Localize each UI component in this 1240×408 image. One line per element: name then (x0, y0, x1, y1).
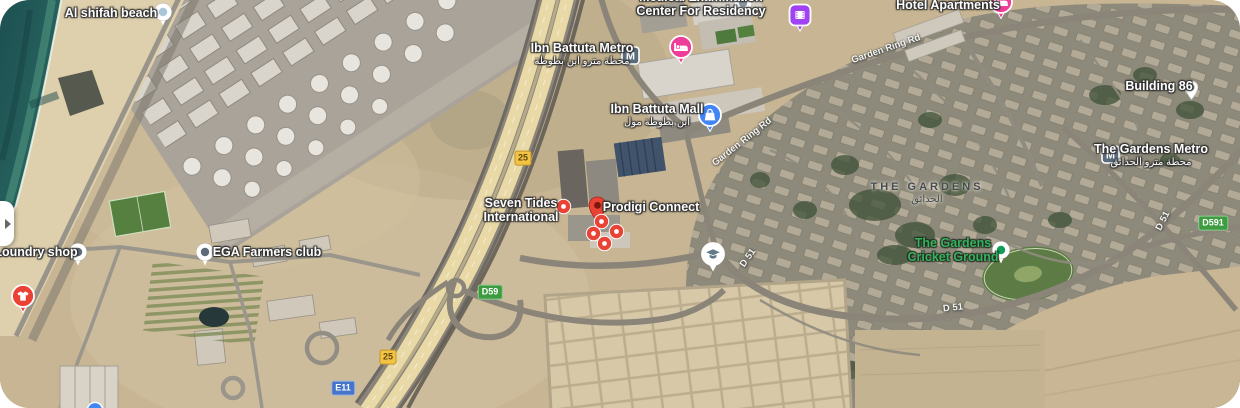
map-overlay: Al shifah beachMedical ExaminationCenter… (0, 0, 1240, 408)
marker-attraction-marker[interactable] (787, 2, 813, 33)
label-line: THE GARDENS (870, 181, 983, 193)
label-line: Seven Tides (483, 196, 558, 210)
route-badge-e11: E11 (331, 381, 355, 396)
route-badge-d59: D59 (478, 285, 503, 300)
marker-school-marker[interactable] (700, 241, 726, 272)
label-line: Prodigi Connect (603, 200, 700, 214)
poi-partial-icon (86, 401, 104, 408)
label-line: Hotel Apartments (896, 0, 1000, 12)
place-label-loundry-shop[interactable]: Loundry shop (0, 245, 78, 259)
cap-icon (700, 241, 726, 272)
road-label-2: D 51 (738, 247, 759, 270)
label-line: International (483, 210, 558, 224)
road-label-3: D 51 (942, 301, 963, 314)
red-dot-icon (596, 235, 613, 252)
route-badge-d591: D591 (1198, 216, 1228, 231)
route-badge-25: 25 (379, 350, 396, 365)
label-line: Building 86 (1125, 79, 1192, 93)
road-label-0: Garden Ring Rd (850, 32, 922, 66)
place-label-the-gardens-cricket-ground[interactable]: The GardensCricket Ground (908, 236, 999, 264)
marker-cluster-poi-marker-4[interactable] (596, 235, 613, 252)
place-label-hotel-apartments[interactable]: Hotel Apartments (896, 0, 1000, 12)
chevron-right-icon (5, 219, 11, 229)
satellite-map[interactable]: Al shifah beachMedical ExaminationCenter… (0, 0, 1240, 408)
route-badge-25: 25 (514, 151, 531, 166)
label-subtext-arabic: الحدائق (870, 194, 983, 205)
label-line: Al shifah beach (65, 6, 157, 20)
marker-hotel-marker[interactable] (668, 34, 694, 65)
label-line: EGA Farmers club (213, 245, 322, 259)
label-line: The Gardens Metro (1094, 142, 1208, 156)
label-line: Loundry shop (0, 245, 78, 259)
label-line: Ibn Battuta Metro (531, 41, 634, 55)
label-subtext-arabic: محطة مترو ابن بطوطة (531, 56, 634, 67)
label-line: Center For Residency (636, 4, 765, 18)
place-label-ega-farmers-club[interactable]: EGA Farmers club (213, 245, 322, 259)
place-label-the-gardens-district[interactable]: THE GARDENSالحدائق (870, 181, 983, 206)
label-line: Ibn Battuta Mall (610, 102, 703, 116)
place-label-ibn-battuta-mall[interactable]: Ibn Battuta Mallابن بطوطة مول (610, 102, 703, 128)
road-label-4: D 51 (1154, 210, 1173, 233)
place-label-the-gardens-metro[interactable]: The Gardens Metroمحطة مترو الحدائق (1094, 142, 1208, 168)
marker-clothing-store-marker[interactable] (10, 283, 36, 314)
place-label-ibn-battuta-metro[interactable]: Ibn Battuta Metroمحطة مترو ابن بطوطة (531, 41, 634, 67)
label-line: The Gardens (908, 236, 999, 250)
label-subtext-arabic: ابن بطوطة مول (610, 117, 703, 128)
place-label-seven-tides-international[interactable]: Seven TidesInternational (483, 196, 558, 224)
place-label-building-86[interactable]: Building 86 (1125, 79, 1192, 93)
film-icon (787, 2, 813, 33)
place-label-prodigi-connect[interactable]: Prodigi Connect (603, 200, 700, 214)
place-label-medical-examination-center[interactable]: Medical ExaminationCenter For Residency (636, 0, 765, 18)
label-line: Cricket Ground (908, 250, 999, 264)
place-label-al-shifah-beach[interactable]: Al shifah beach (65, 6, 157, 20)
side-panel-toggle-button[interactable] (0, 201, 14, 246)
shirt-icon (10, 283, 36, 314)
bed-icon (668, 34, 694, 65)
label-subtext-arabic: محطة مترو الحدائق (1094, 157, 1208, 168)
marker-clipped-bottom-marker[interactable] (86, 401, 104, 408)
